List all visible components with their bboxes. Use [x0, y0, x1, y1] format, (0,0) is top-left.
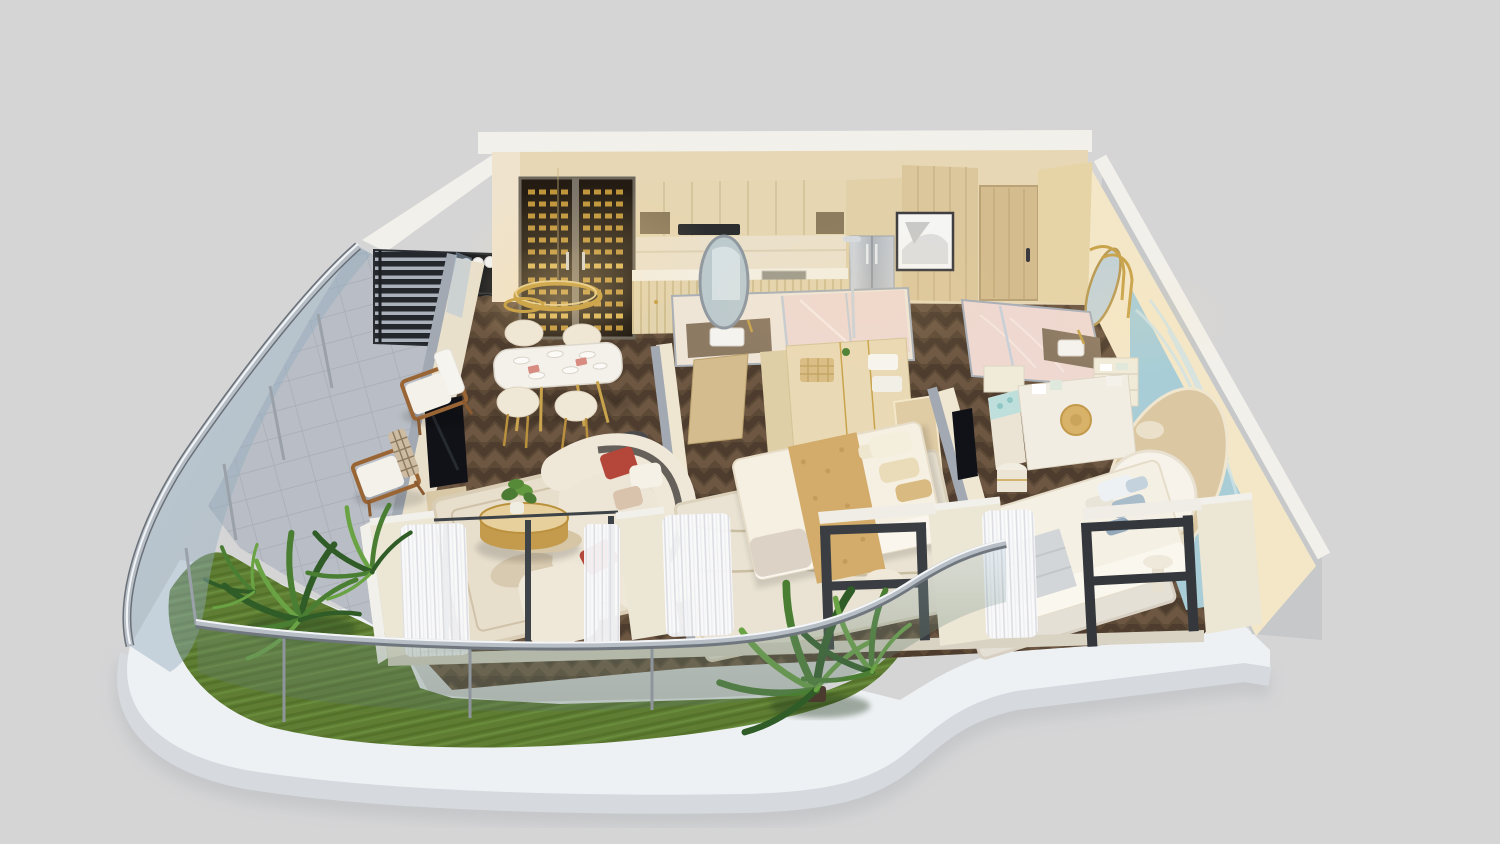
- sheer-curtain: [662, 513, 734, 637]
- white-cushion: [628, 462, 663, 490]
- pedestal-side-table: [1143, 555, 1173, 569]
- shelf-item: [1050, 380, 1062, 390]
- glazing-mullion: [525, 520, 531, 644]
- cushion-print: [1007, 397, 1013, 403]
- dining-chair: [555, 391, 597, 421]
- sheer-curtain: [584, 524, 620, 648]
- dining-chair: [497, 387, 539, 417]
- ensuite-door: [688, 354, 748, 444]
- kitchen-glow: [455, 185, 715, 325]
- cushion-print: [997, 403, 1003, 409]
- render-stage: [0, 0, 1500, 844]
- apartment-3d-render: [0, 0, 1500, 844]
- front-wall-segment: [1196, 496, 1262, 634]
- shelf-item: [1032, 384, 1046, 394]
- handle-center: [1070, 414, 1082, 426]
- sheer-curtain: [400, 523, 471, 657]
- hall-glow: [700, 220, 1020, 380]
- plant-vase: [510, 502, 524, 514]
- drum-nightstand-body: [997, 470, 1027, 492]
- door-handle: [1026, 248, 1030, 262]
- dining-chair-back: [505, 320, 543, 346]
- bedroom-glow: [1030, 260, 1250, 380]
